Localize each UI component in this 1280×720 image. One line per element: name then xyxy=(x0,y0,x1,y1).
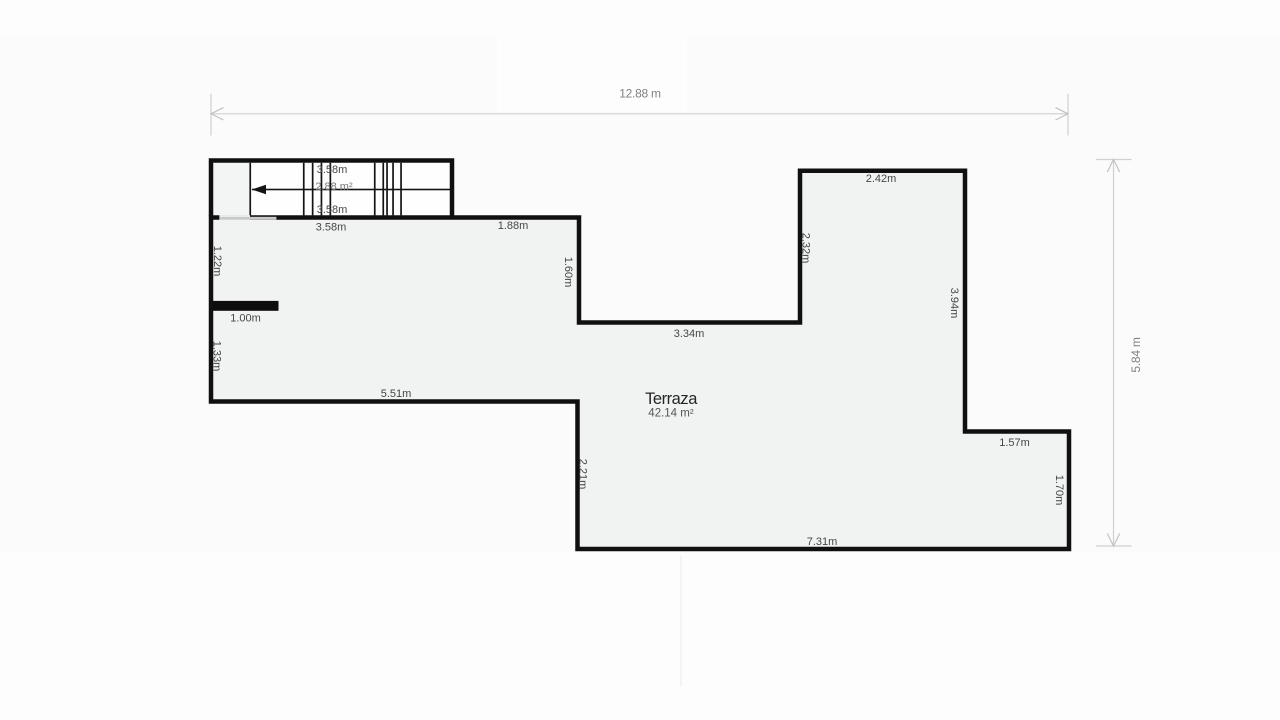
svg-text:2.32m: 2.32m xyxy=(800,233,812,264)
svg-text:3.58m: 3.58m xyxy=(316,222,347,234)
svg-text:7.31m: 7.31m xyxy=(807,536,838,548)
svg-text:42.14 m²: 42.14 m² xyxy=(648,408,694,420)
svg-text:12.88 m: 12.88 m xyxy=(619,87,661,101)
svg-text:3.34m: 3.34m xyxy=(674,328,705,340)
svg-text:1.88m: 1.88m xyxy=(498,220,529,232)
svg-text:1.57m: 1.57m xyxy=(999,437,1030,449)
svg-text:1.70m: 1.70m xyxy=(1053,475,1065,506)
svg-text:1.00m: 1.00m xyxy=(230,313,261,325)
svg-text:Terraza: Terraza xyxy=(645,390,698,408)
svg-text:3.94m: 3.94m xyxy=(948,288,960,319)
svg-text:2.42m: 2.42m xyxy=(866,173,897,185)
svg-text:1.60m: 1.60m xyxy=(562,257,574,288)
svg-text:5.51m: 5.51m xyxy=(381,388,412,400)
svg-text:3.58m: 3.58m xyxy=(317,204,348,216)
svg-text:1.22m: 1.22m xyxy=(211,246,223,277)
svg-text:2.88 m²: 2.88 m² xyxy=(315,181,353,193)
svg-text:1.33m: 1.33m xyxy=(211,341,223,372)
svg-text:5.84 m: 5.84 m xyxy=(1129,337,1143,372)
svg-text:3.58m: 3.58m xyxy=(317,164,348,176)
svg-text:2.21m: 2.21m xyxy=(577,459,589,490)
